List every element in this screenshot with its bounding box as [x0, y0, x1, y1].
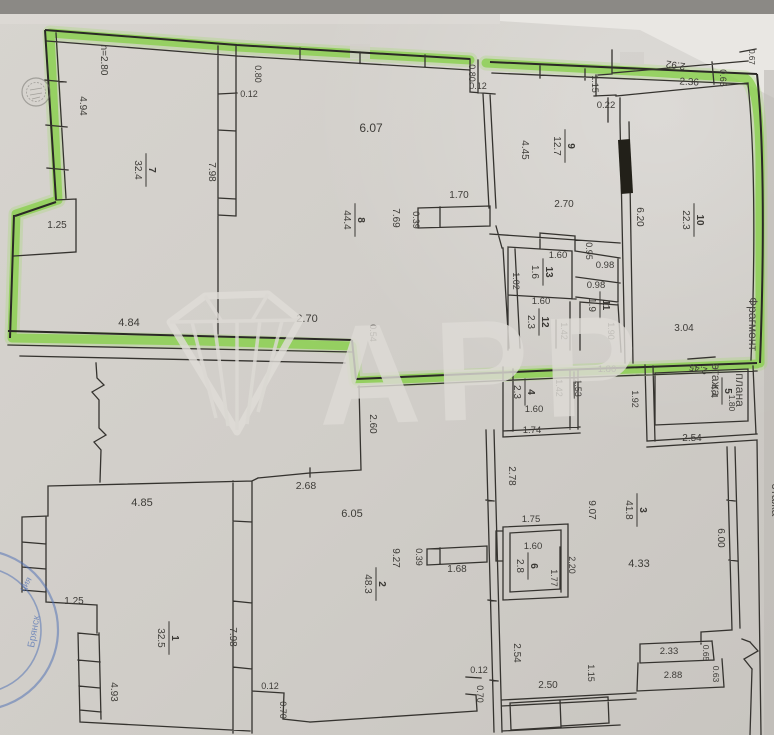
dimension-label: 2.20: [567, 556, 577, 574]
dimension-label: 0.80: [253, 65, 263, 83]
dimension-label: 2.50: [538, 680, 558, 691]
dimension-label: 0.22: [597, 100, 616, 111]
dimension-label: 0.12: [240, 89, 258, 99]
dimension-label: 7.98: [206, 162, 217, 182]
room-area: 12.7: [551, 136, 562, 156]
dimension-label: h=2.80: [98, 45, 109, 76]
dimension-label: 0.65: [718, 69, 728, 87]
dimension-label: 0.63: [711, 666, 721, 683]
dimension-label: 1.25: [47, 220, 67, 231]
dimension-label: 6.07: [359, 121, 383, 135]
dimension-label: 0.98: [596, 260, 615, 271]
dimension-label: 1.68: [447, 564, 467, 575]
dimension-label: 4.94: [77, 96, 88, 116]
dimension-label: 1.70: [449, 190, 469, 201]
dimension-label: 1.60: [549, 250, 568, 261]
dimension-label: 2.54: [682, 433, 702, 444]
caption-label: плана: [733, 373, 747, 407]
dimension-label: 0.12: [470, 665, 488, 675]
dimension-label: 2.70: [554, 199, 574, 210]
dimension-label: 0.12: [261, 681, 279, 691]
dimension-label: 3.04: [674, 323, 694, 334]
dimension-label: 4.85: [131, 497, 152, 509]
dimension-label: 6.20: [634, 207, 645, 227]
room-number: 8: [355, 217, 366, 223]
room-number: 2: [376, 581, 387, 587]
dimension-label: 7.69: [390, 208, 401, 228]
dimension-label: 2.54: [511, 643, 522, 663]
caption-label: этажа: [709, 364, 723, 397]
room-number: 10: [694, 214, 705, 226]
dimension-label: 2.68: [296, 480, 317, 492]
room-number: 7: [146, 167, 157, 173]
dimension-label: 0.80: [467, 64, 477, 82]
dimension-label: 0.39: [414, 548, 424, 566]
dimension-label: 0.70: [475, 685, 485, 703]
photo-top-edge: [0, 0, 774, 14]
dimension-label: 4.33: [628, 558, 649, 570]
room-area: 2.8: [514, 559, 525, 573]
dimension-label: 1.77: [549, 569, 559, 587]
dimension-label: 4.45: [519, 140, 530, 160]
room-area: 44.4: [341, 210, 352, 230]
dimension-label: 1.75: [522, 514, 541, 525]
dimension-label: 2.78: [506, 466, 517, 486]
room-number: 1: [169, 635, 180, 641]
dimension-label: 2.33: [660, 646, 679, 657]
dimension-label: 6.05: [341, 508, 362, 520]
dimension-label: 0.70: [278, 701, 288, 719]
dimension-label: 1.60: [524, 541, 543, 552]
dimension-label: 2.88: [664, 670, 683, 681]
room-area: 41.8: [623, 500, 634, 520]
dimension-label: 0.65: [701, 645, 711, 662]
caption-label: Фрагмент: [746, 297, 760, 351]
dimension-label: 4.93: [108, 682, 119, 702]
room-number: 13: [543, 266, 554, 278]
dimension-label: 4.84: [118, 317, 139, 329]
dimension-label: 7.98: [227, 627, 238, 647]
dimension-label: 9.27: [390, 548, 401, 568]
room-area: 48.3: [362, 574, 373, 594]
room-area: 32.5: [155, 628, 166, 648]
caption-label: этажа: [769, 484, 774, 517]
room-area: 22.3: [680, 210, 691, 230]
dimension-label: 9.07: [586, 500, 597, 520]
dimension-label: 1.15: [586, 664, 596, 682]
window-gap: [620, 52, 644, 65]
watermark-text: АРР: [315, 285, 654, 456]
dimension-label: 1.25: [64, 596, 84, 607]
dimension-label: 6.00: [715, 528, 726, 548]
dimension-label: 0.39: [411, 211, 421, 229]
room-area: 1.6: [529, 265, 540, 279]
room-number: 3: [637, 507, 648, 513]
room-number: 6: [528, 563, 539, 569]
page-edge-top: [0, 14, 500, 24]
dimension-label: 2.36: [679, 76, 700, 88]
dimension-label: 0.67: [747, 49, 756, 65]
floor-plan-photo: h=2.804.941.257.980.800.126.077.690.391.…: [0, 0, 774, 735]
dimension-label: 1.15: [590, 75, 600, 93]
dimension-label: 0.12: [469, 81, 487, 91]
room-number: 9: [565, 143, 576, 149]
room-area: 32.4: [132, 160, 143, 180]
dimension-label: 0.95: [584, 242, 594, 260]
dimension-label: 1.02: [511, 272, 521, 290]
